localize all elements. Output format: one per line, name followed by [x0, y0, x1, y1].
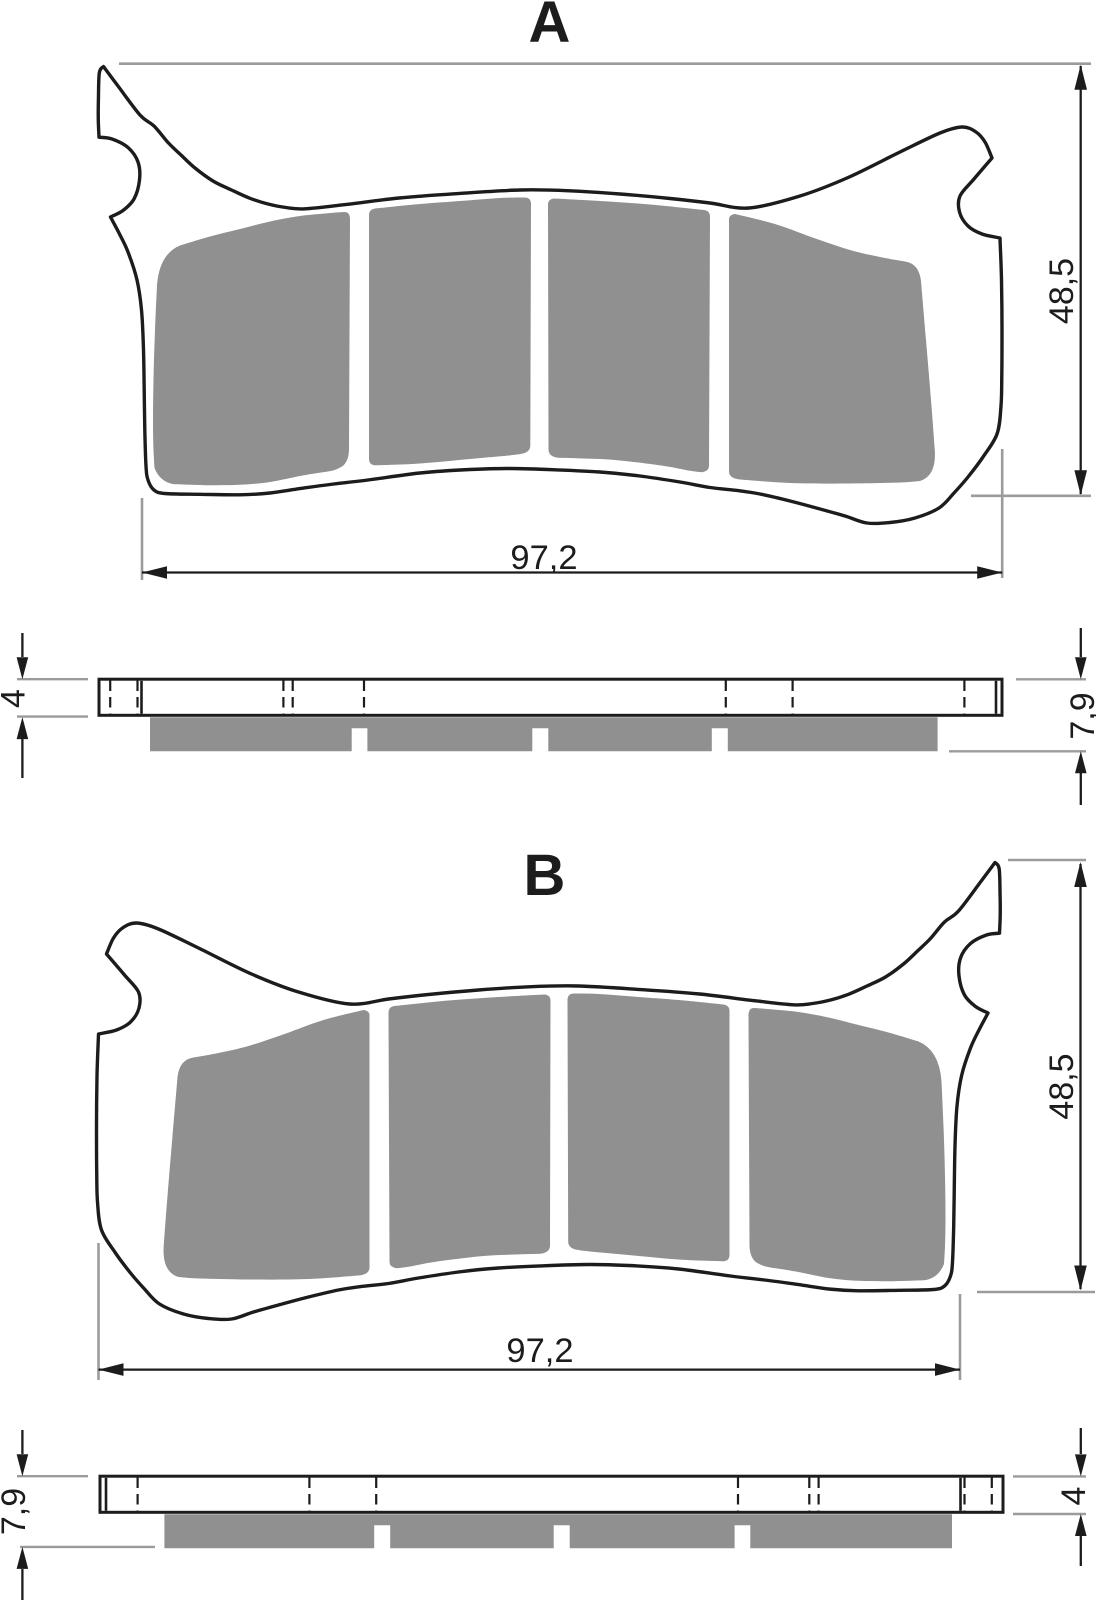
- svg-text:48,5: 48,5: [1043, 258, 1081, 324]
- svg-text:97,2: 97,2: [506, 1332, 573, 1370]
- svg-text:48,5: 48,5: [1043, 1053, 1081, 1119]
- svg-text:4: 4: [0, 689, 33, 708]
- svg-text:97,2: 97,2: [510, 539, 577, 577]
- svg-text:B: B: [524, 843, 566, 908]
- svg-text:7,9: 7,9: [0, 1488, 33, 1535]
- svg-text:A: A: [529, 0, 571, 55]
- svg-text:4: 4: [1055, 1487, 1093, 1506]
- svg-text:7,9: 7,9: [1064, 692, 1096, 739]
